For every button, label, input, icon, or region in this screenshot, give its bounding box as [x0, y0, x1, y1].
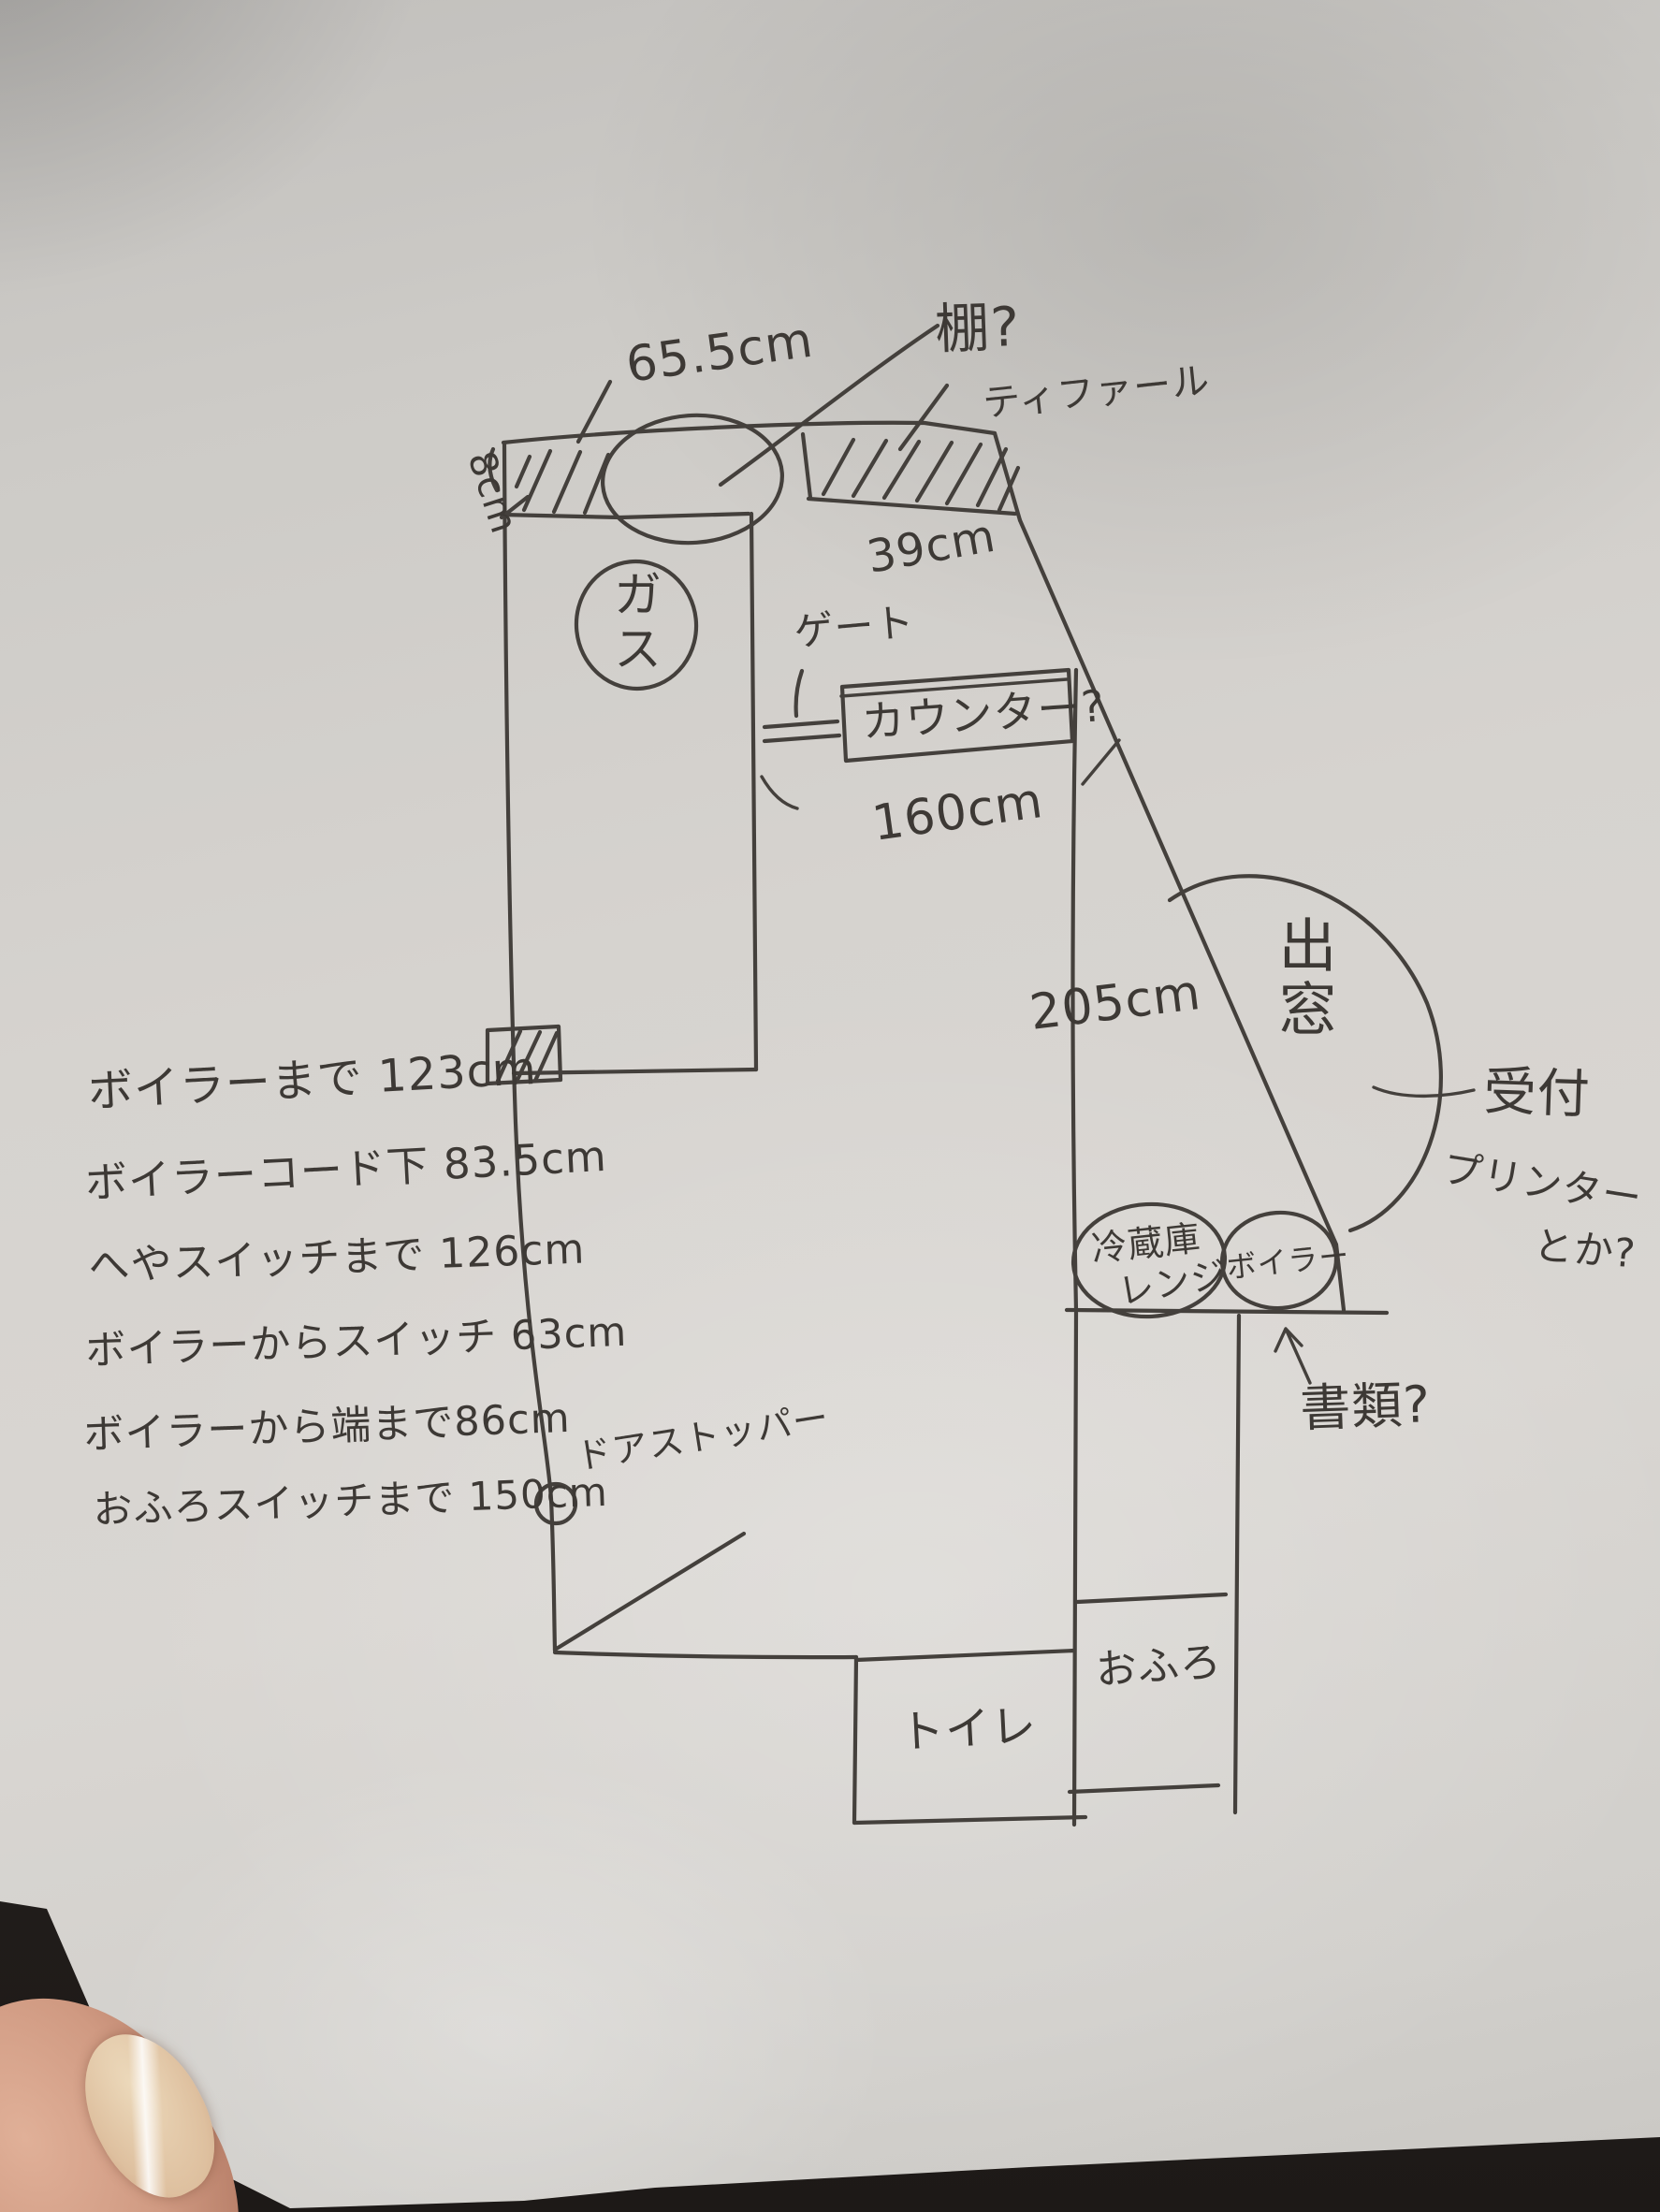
gate-leader	[796, 671, 802, 716]
label-counter: カウンター?	[860, 680, 1107, 748]
label-gas: ガス	[604, 569, 661, 677]
bath-bottom-wall	[1070, 1785, 1218, 1792]
hatching-right-band	[823, 440, 1018, 510]
corridor-left-wall	[1074, 1313, 1076, 1825]
note-boiler-to-switch: ボイラーからスイッチ 63cm	[85, 1309, 628, 1375]
documents-arrow	[1275, 1329, 1310, 1383]
gate-line-upper	[764, 721, 837, 727]
label-tefal: ティファール	[981, 359, 1212, 426]
toilet-left-wall	[854, 1657, 856, 1823]
toilet-bottom-wall	[854, 1817, 1085, 1823]
label-top-width: 65.5cm	[622, 312, 816, 393]
bath-top-divider	[1077, 1594, 1226, 1602]
floorplan-svg: 65.5cm 棚? ティファール 39cm 8cm ガス ゲート カウンター? …	[0, 0, 1660, 2212]
right-side-walls	[1020, 520, 1474, 1313]
label-gate: ゲート	[793, 599, 917, 655]
lower-rooms	[536, 1313, 1239, 1825]
note-room-switch: へやスイッチまで 126cm	[88, 1225, 586, 1290]
label-toilet: トイレ	[898, 1699, 1039, 1759]
kitchen-right-wall	[751, 514, 756, 1070]
bottom-wall	[555, 1652, 856, 1657]
label-reception: 受付	[1483, 1061, 1592, 1126]
note-bath-switch: おふろスイッチまで 150cm	[93, 1469, 609, 1533]
label-bath: おふろ	[1094, 1638, 1223, 1695]
note-boiler-to-edge: ボイラーから端まで86cm	[83, 1395, 572, 1459]
label-printer: プリンター	[1439, 1144, 1645, 1221]
label-left-depth: 8cm	[459, 446, 525, 539]
photo-of-floorplan-sketch: 65.5cm 棚? ティファール 39cm 8cm ガス ゲート カウンター? …	[0, 0, 1660, 2212]
note-boiler-distance: ボイラーまで 123cm	[87, 1042, 538, 1118]
label-right-width: 39cm	[863, 510, 999, 584]
toilet-top-wall	[856, 1651, 1074, 1660]
tick-655-right	[900, 386, 947, 449]
gate-line-lower	[764, 735, 839, 741]
label-counter-length: 160cm	[868, 773, 1046, 852]
note-boiler-cord: ボイラーコード下 83.5cm	[84, 1131, 608, 1208]
right-band-left-edge	[803, 434, 810, 498]
label-documents: 書類?	[1299, 1375, 1432, 1438]
label-shelf: 棚?	[934, 295, 1021, 361]
label-printer-question: とか?	[1532, 1222, 1638, 1276]
gate	[762, 671, 839, 808]
reception-leader	[1374, 1087, 1474, 1096]
label-bay-window: 出窓	[1269, 915, 1337, 1042]
gate-swing-arc	[762, 777, 797, 808]
label-door-stopper: ドアストッパー	[574, 1397, 833, 1477]
wall-top-band-bottom	[502, 514, 749, 517]
counter-corner-tick	[1083, 740, 1119, 784]
label-right-height: 205cm	[1027, 965, 1203, 1041]
hatching-left-band	[517, 451, 608, 513]
door-swing-line	[555, 1534, 744, 1650]
kitchen-bottom-wall	[514, 1070, 756, 1073]
corridor-right-wall	[1235, 1316, 1239, 1812]
top-wall	[489, 423, 1020, 520]
